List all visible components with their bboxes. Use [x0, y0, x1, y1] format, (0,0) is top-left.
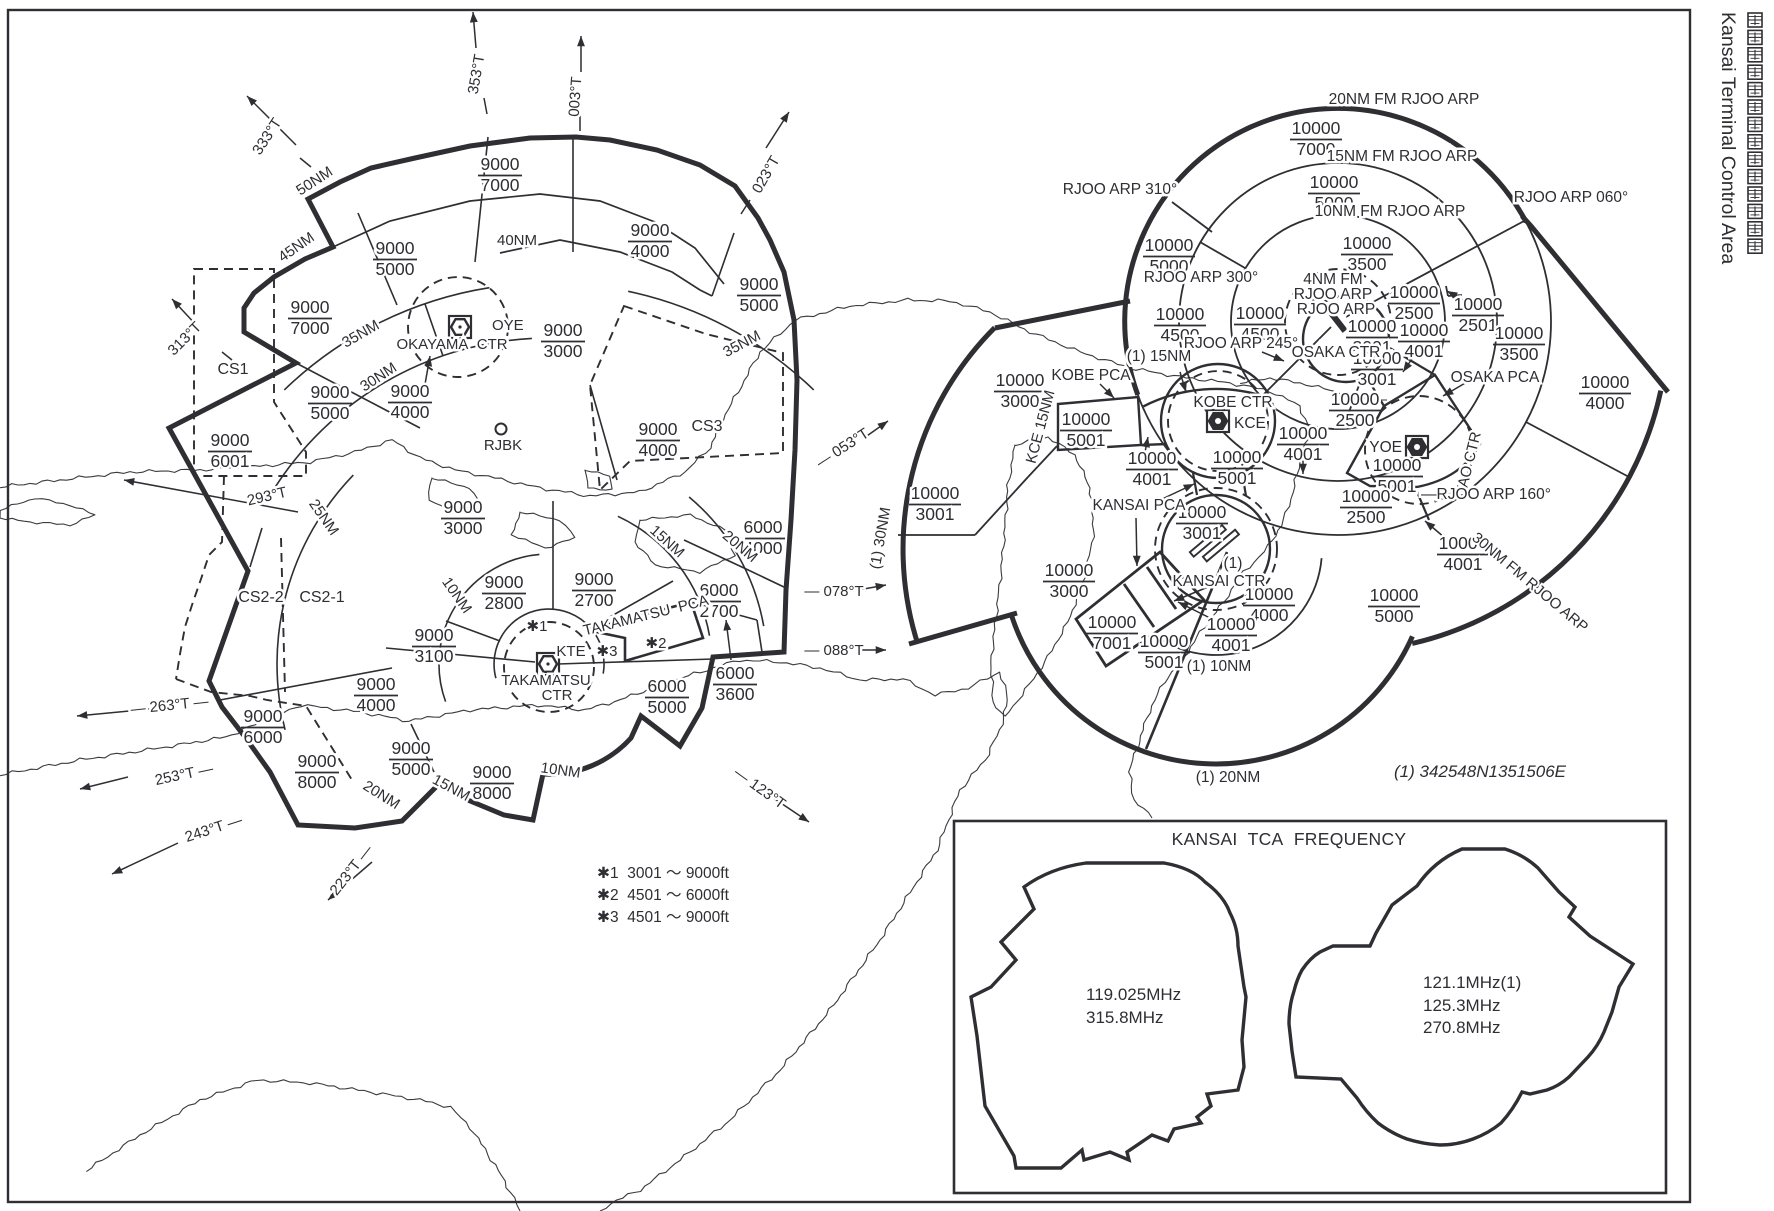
svg-text:10000: 10000: [1128, 448, 1177, 468]
svg-text:—RJOO ARP 160°: —RJOO ARP 160°: [1421, 486, 1551, 503]
svg-text:6000: 6000: [744, 517, 783, 537]
svg-text:7000: 7000: [291, 318, 330, 338]
svg-text:CS2-1: CS2-1: [299, 589, 344, 606]
svg-text:4001: 4001: [1284, 444, 1323, 464]
svg-text:6000: 6000: [648, 676, 687, 696]
svg-text:(1) 342548N1351506E: (1) 342548N1351506E: [1394, 762, 1567, 781]
svg-text:YOE: YOE: [1369, 439, 1402, 456]
svg-text:4000: 4000: [631, 241, 670, 261]
svg-text:40NM: 40NM: [497, 232, 537, 249]
svg-text:10000: 10000: [1062, 409, 1111, 429]
svg-text:6000: 6000: [716, 663, 755, 683]
svg-text:5001: 5001: [1067, 430, 1106, 450]
svg-text:10000: 10000: [1400, 320, 1449, 340]
svg-text:CS3: CS3: [691, 418, 722, 435]
svg-text:4001: 4001: [1133, 469, 1172, 489]
svg-text:KTE: KTE: [556, 643, 585, 660]
svg-text:(1) 10NM: (1) 10NM: [1187, 658, 1252, 675]
svg-text:3000: 3000: [1050, 581, 1089, 601]
svg-text:4001: 4001: [1444, 554, 1483, 574]
svg-text:9000: 9000: [391, 381, 430, 401]
svg-text:4000: 4000: [391, 402, 430, 422]
svg-text:CS2-2: CS2-2: [238, 589, 283, 606]
svg-text:270.8MHz: 270.8MHz: [1423, 1018, 1500, 1037]
svg-text:10000: 10000: [996, 370, 1045, 390]
svg-text:10000: 10000: [1292, 118, 1341, 138]
svg-text:9000: 9000: [575, 569, 614, 589]
svg-text:KOBE PCA: KOBE PCA: [1051, 367, 1131, 384]
svg-text:7000: 7000: [481, 175, 520, 195]
svg-text:9000: 9000: [244, 706, 283, 726]
svg-text:3001: 3001: [1358, 369, 1397, 389]
svg-text:2700: 2700: [575, 590, 614, 610]
svg-text:8000: 8000: [473, 783, 512, 803]
svg-text:KANSAI CTR: KANSAI CTR: [1172, 573, 1265, 590]
svg-text:7001: 7001: [1093, 633, 1132, 653]
svg-text:— 088°T: — 088°T: [804, 642, 863, 659]
svg-text:RJOO ARP 300°: RJOO ARP 300°: [1144, 269, 1258, 286]
svg-text:9000: 9000: [473, 762, 512, 782]
svg-text:RJOO ARP 060°: RJOO ARP 060°: [1514, 189, 1628, 206]
svg-text:OKAYAMA CTR: OKAYAMA CTR: [396, 336, 507, 353]
svg-text:3000: 3000: [544, 341, 583, 361]
svg-text:4000: 4000: [639, 440, 678, 460]
svg-text:315.8MHz: 315.8MHz: [1086, 1008, 1163, 1027]
svg-text:4001: 4001: [1405, 341, 1444, 361]
svg-text:4001: 4001: [1212, 635, 1251, 655]
svg-text:10000: 10000: [1373, 455, 1422, 475]
svg-text:5001: 5001: [1145, 652, 1184, 672]
svg-text:9000: 9000: [311, 382, 350, 402]
svg-text:10000: 10000: [1348, 316, 1397, 336]
svg-text:9000: 9000: [639, 419, 678, 439]
svg-text:9000: 9000: [631, 220, 670, 240]
svg-text:5001: 5001: [1218, 468, 1257, 488]
svg-text:✱2 4501 ～ 6000ft: ✱2 4501 ～ 6000ft: [597, 887, 730, 904]
svg-text:9000: 9000: [392, 738, 431, 758]
svg-text:10000: 10000: [1279, 423, 1328, 443]
svg-text:6001: 6001: [211, 451, 250, 471]
svg-text:10NM FM RJOO ARP: 10NM FM RJOO ARP: [1315, 203, 1466, 220]
svg-text:10000: 10000: [1213, 447, 1262, 467]
svg-text:3000: 3000: [1001, 391, 1040, 411]
svg-text:9000: 9000: [485, 572, 524, 592]
svg-text:KOBE CTR: KOBE CTR: [1193, 394, 1272, 411]
svg-text:119.025MHz: 119.025MHz: [1086, 985, 1181, 1004]
svg-text:KANSAI TCA FREQUENCY: KANSAI TCA FREQUENCY: [1172, 829, 1407, 849]
svg-text:15NM FM RJOO ARP: 15NM FM RJOO ARP: [1327, 148, 1478, 165]
svg-text:5000: 5000: [392, 759, 431, 779]
svg-text:9000: 9000: [357, 674, 396, 694]
svg-text:003°T: 003°T: [566, 76, 586, 117]
svg-text:10000: 10000: [1207, 614, 1256, 634]
svg-text:5000: 5000: [311, 403, 350, 423]
svg-text:2800: 2800: [485, 593, 524, 613]
svg-text:4000: 4000: [1586, 393, 1625, 413]
svg-text:10000: 10000: [1145, 235, 1194, 255]
svg-text:5000: 5000: [648, 697, 687, 717]
svg-text:KCE: KCE: [1234, 415, 1266, 432]
svg-text:✱3: ✱3: [597, 643, 618, 660]
svg-text:10000: 10000: [1140, 631, 1189, 651]
svg-text:10000: 10000: [1495, 323, 1544, 343]
svg-text:10000: 10000: [1236, 303, 1285, 323]
svg-text:3001: 3001: [1183, 523, 1222, 543]
svg-text:OYE: OYE: [492, 317, 524, 334]
svg-text:✱3 4501 ～ 9000ft: ✱3 4501 ～ 9000ft: [597, 909, 730, 926]
svg-text:RJBK: RJBK: [484, 437, 522, 454]
svg-text:10000: 10000: [1342, 486, 1391, 506]
svg-text:9000: 9000: [544, 320, 583, 340]
svg-text:10000: 10000: [911, 483, 960, 503]
svg-text:3600: 3600: [716, 684, 755, 704]
svg-text:10000: 10000: [1156, 304, 1205, 324]
svg-text:6000: 6000: [244, 727, 283, 747]
svg-text:8000: 8000: [298, 772, 337, 792]
svg-text:9000: 9000: [444, 497, 483, 517]
svg-text:10000: 10000: [1310, 172, 1359, 192]
svg-text:RJOO ARP 245°: RJOO ARP 245°: [1184, 335, 1298, 352]
svg-text:Kansai Terminal Control Area: Kansai Terminal Control Area: [1717, 12, 1739, 264]
svg-text:3000: 3000: [444, 518, 483, 538]
svg-text:(1): (1): [1224, 555, 1243, 572]
svg-text:KANSAI PCA: KANSAI PCA: [1092, 497, 1186, 514]
svg-text:9000: 9000: [415, 625, 454, 645]
svg-text:3500: 3500: [1500, 344, 1539, 364]
svg-text:10000: 10000: [1581, 372, 1630, 392]
svg-text:CS1: CS1: [217, 361, 248, 378]
svg-text:(1) 20NM: (1) 20NM: [1196, 769, 1261, 786]
svg-text:10000: 10000: [1331, 389, 1380, 409]
svg-text:2500: 2500: [1336, 410, 1375, 430]
svg-text:3100: 3100: [415, 646, 454, 666]
svg-text:— 078°T: — 078°T: [804, 583, 863, 600]
svg-text:5000: 5000: [740, 295, 779, 315]
svg-text:2501: 2501: [1459, 315, 1498, 335]
svg-text:9000: 9000: [481, 154, 520, 174]
svg-text:✱1 3001 ～ 9000ft: ✱1 3001 ～ 9000ft: [597, 865, 730, 882]
svg-text:10000: 10000: [1390, 282, 1439, 302]
svg-text:10000: 10000: [1045, 560, 1094, 580]
svg-text:4000: 4000: [1250, 605, 1289, 625]
svg-text:✱2: ✱2: [646, 635, 667, 652]
svg-text:9000: 9000: [298, 751, 337, 771]
svg-text:OSAKA PCA: OSAKA PCA: [1451, 369, 1540, 386]
svg-text:9000: 9000: [740, 274, 779, 294]
svg-text:125.3MHz: 125.3MHz: [1423, 996, 1500, 1015]
svg-text:RJOO ARP: RJOO ARP: [1297, 301, 1375, 318]
svg-text:10000: 10000: [1454, 294, 1503, 314]
svg-text:10000: 10000: [1343, 233, 1392, 253]
svg-text:3001: 3001: [916, 504, 955, 524]
svg-text:5000: 5000: [376, 259, 415, 279]
svg-text:OSAKA CTR: OSAKA CTR: [1292, 344, 1381, 361]
svg-text:20NM FM RJOO ARP: 20NM FM RJOO ARP: [1329, 91, 1480, 108]
svg-text:✱1: ✱1: [527, 618, 548, 635]
svg-text:9000: 9000: [291, 297, 330, 317]
svg-text:5000: 5000: [1375, 606, 1414, 626]
svg-text:10000: 10000: [1088, 612, 1137, 632]
svg-text:121.1MHz(1): 121.1MHz(1): [1423, 973, 1521, 992]
svg-text:10000: 10000: [1370, 585, 1419, 605]
svg-text:2500: 2500: [1347, 507, 1386, 527]
svg-text:4000: 4000: [357, 695, 396, 715]
svg-text:RJOO ARP 310°: RJOO ARP 310°: [1063, 181, 1177, 198]
svg-text:9000: 9000: [211, 430, 250, 450]
svg-text:(1) 15NM: (1) 15NM: [1127, 348, 1192, 365]
svg-text:CTR: CTR: [542, 687, 573, 704]
svg-text:9000: 9000: [376, 238, 415, 258]
